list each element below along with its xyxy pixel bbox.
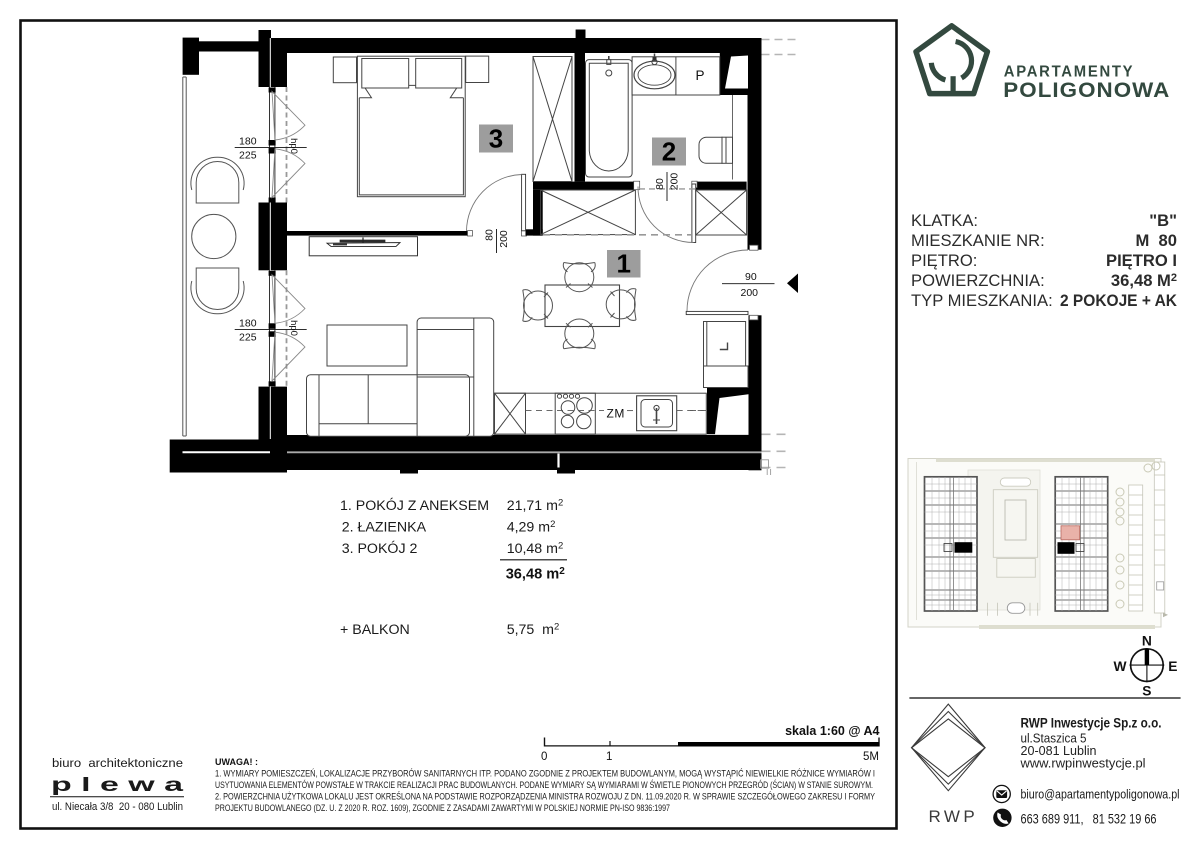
- svg-text:3. POKÓJ 2: 3. POKÓJ 2: [342, 540, 418, 557]
- svg-text:MIESZKANIE NR:: MIESZKANIE NR:: [911, 231, 1045, 250]
- svg-text:hp0: hp0: [288, 138, 299, 154]
- svg-text:KLATKA:: KLATKA:: [911, 211, 978, 230]
- svg-text:225: 225: [239, 332, 257, 344]
- svg-text:80: 80: [654, 178, 666, 190]
- svg-text:4,29 m2: 4,29 m2: [507, 519, 556, 536]
- svg-text:ul. Niecała 3/8 20 - 080 Lubl: ul. Niecała 3/8 20 - 080 Lublin: [52, 801, 183, 813]
- svg-text:P: P: [696, 68, 705, 83]
- svg-text:1: 1: [606, 751, 612, 763]
- svg-text:hp0: hp0: [288, 320, 299, 336]
- svg-text:1. POKÓJ Z ANEKSEM: 1. POKÓJ Z ANEKSEM: [340, 497, 489, 514]
- svg-text:biuro architektoniczne: biuro architektoniczne: [52, 756, 183, 770]
- svg-text:PROJEKTU BUDOWLANEGO (DZ. U. Z: PROJEKTU BUDOWLANEGO (DZ. U. Z 2020 R. R…: [215, 803, 670, 813]
- svg-text:TYP MIESZKANIA:: TYP MIESZKANIA:: [911, 291, 1053, 310]
- svg-text:0: 0: [541, 751, 547, 763]
- svg-text:PIĘTRO I: PIĘTRO I: [1106, 251, 1177, 270]
- svg-text:www.rwpinwestycje.pl: www.rwpinwestycje.pl: [1020, 756, 1146, 771]
- svg-text:180: 180: [239, 136, 257, 148]
- svg-text:3: 3: [489, 124, 503, 154]
- svg-text:10,48 m2: 10,48 m2: [507, 541, 564, 558]
- svg-text:UWAGA! :: UWAGA! :: [215, 757, 258, 767]
- svg-text:5,75 m2: 5,75 m2: [507, 622, 560, 639]
- svg-text:p l e w a: p l e w a: [51, 774, 183, 796]
- svg-text:663 689 911, 81 532 19 66: 663 689 911, 81 532 19 66: [1021, 811, 1157, 827]
- svg-text:RWP: RWP: [929, 807, 979, 826]
- svg-text:RWP Inwestycje Sp.z o.o.: RWP Inwestycje Sp.z o.o.: [1021, 716, 1162, 731]
- svg-text:POWIERZCHNIA:: POWIERZCHNIA:: [911, 271, 1045, 290]
- svg-text:36,48 m2: 36,48 m2: [506, 566, 566, 583]
- svg-text:5M: 5M: [863, 751, 879, 763]
- svg-text:S: S: [1142, 684, 1151, 699]
- svg-text:36,48 M2: 36,48 M2: [1111, 271, 1177, 290]
- svg-text:200: 200: [741, 287, 759, 299]
- svg-text:2 POKOJE + AK: 2 POKOJE + AK: [1060, 291, 1177, 310]
- svg-text:E: E: [1168, 659, 1177, 674]
- svg-text:ZM: ZM: [607, 407, 625, 421]
- svg-text:skala 1:60 @ A4: skala 1:60 @ A4: [785, 724, 879, 738]
- svg-text:200: 200: [498, 230, 510, 248]
- svg-text:80: 80: [484, 229, 496, 241]
- svg-text:2: 2: [662, 137, 676, 167]
- svg-text:W: W: [1113, 659, 1127, 674]
- svg-text:2. ŁAZIENKA: 2. ŁAZIENKA: [342, 520, 427, 536]
- svg-text:1: 1: [616, 249, 630, 279]
- svg-text:180: 180: [239, 318, 257, 330]
- svg-text:USYTUOWANIA ELEMENTÓW POWSTAŁE: USYTUOWANIA ELEMENTÓW POWSTAŁE W TRAKCIE…: [215, 779, 873, 790]
- svg-text:21,71 m2: 21,71 m2: [507, 498, 564, 515]
- svg-text:N: N: [1142, 633, 1152, 648]
- svg-text:"B": "B": [1149, 211, 1177, 230]
- svg-text:POLIGONOWA: POLIGONOWA: [1003, 78, 1170, 102]
- svg-text:1. WYMIARY POMIESZCZEŃ, LOKALI: 1. WYMIARY POMIESZCZEŃ, LOKALIZACJE PRZY…: [215, 769, 875, 779]
- svg-text:biuro@apartamentypoligonowa.pl: biuro@apartamentypoligonowa.pl: [1021, 786, 1180, 801]
- svg-text:90: 90: [745, 271, 757, 283]
- svg-text:225: 225: [239, 150, 257, 162]
- svg-text:200: 200: [669, 173, 681, 191]
- svg-text:M 80: M 80: [1135, 231, 1177, 250]
- svg-text:+ BALKON: + BALKON: [340, 622, 410, 638]
- svg-text:2. POWIERZCHNIA UŻYTKOWA LOKAL: 2. POWIERZCHNIA UŻYTKOWA LOKALU JEST OKR…: [215, 791, 875, 802]
- svg-text:PIĘTRO:: PIĘTRO:: [911, 251, 977, 270]
